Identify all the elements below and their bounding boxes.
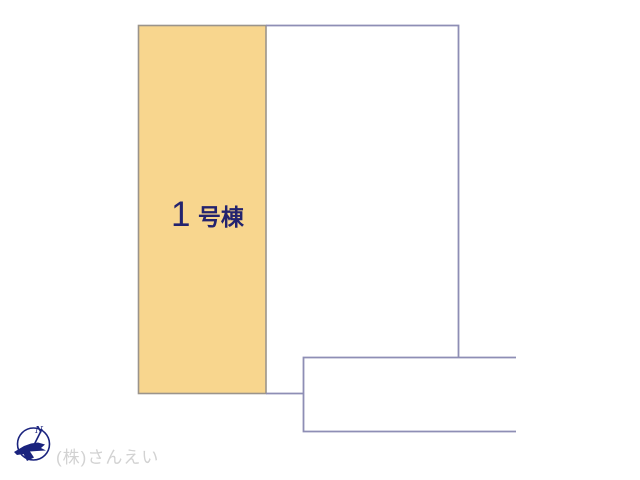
parcel-1-number: 1 [171, 195, 190, 234]
neighbour-lot-boundary [266, 26, 459, 358]
annex-lot-outline [304, 358, 517, 432]
parcel-1-suffix: 号棟 [198, 204, 245, 230]
site-plan-drawing: 1 号棟 N (株)さんえい [0, 0, 640, 480]
site-plan: 1 号棟 N (株)さんえい [0, 0, 640, 480]
company-watermark: (株)さんえい [56, 448, 159, 467]
compass-north-icon: N [14, 424, 50, 461]
